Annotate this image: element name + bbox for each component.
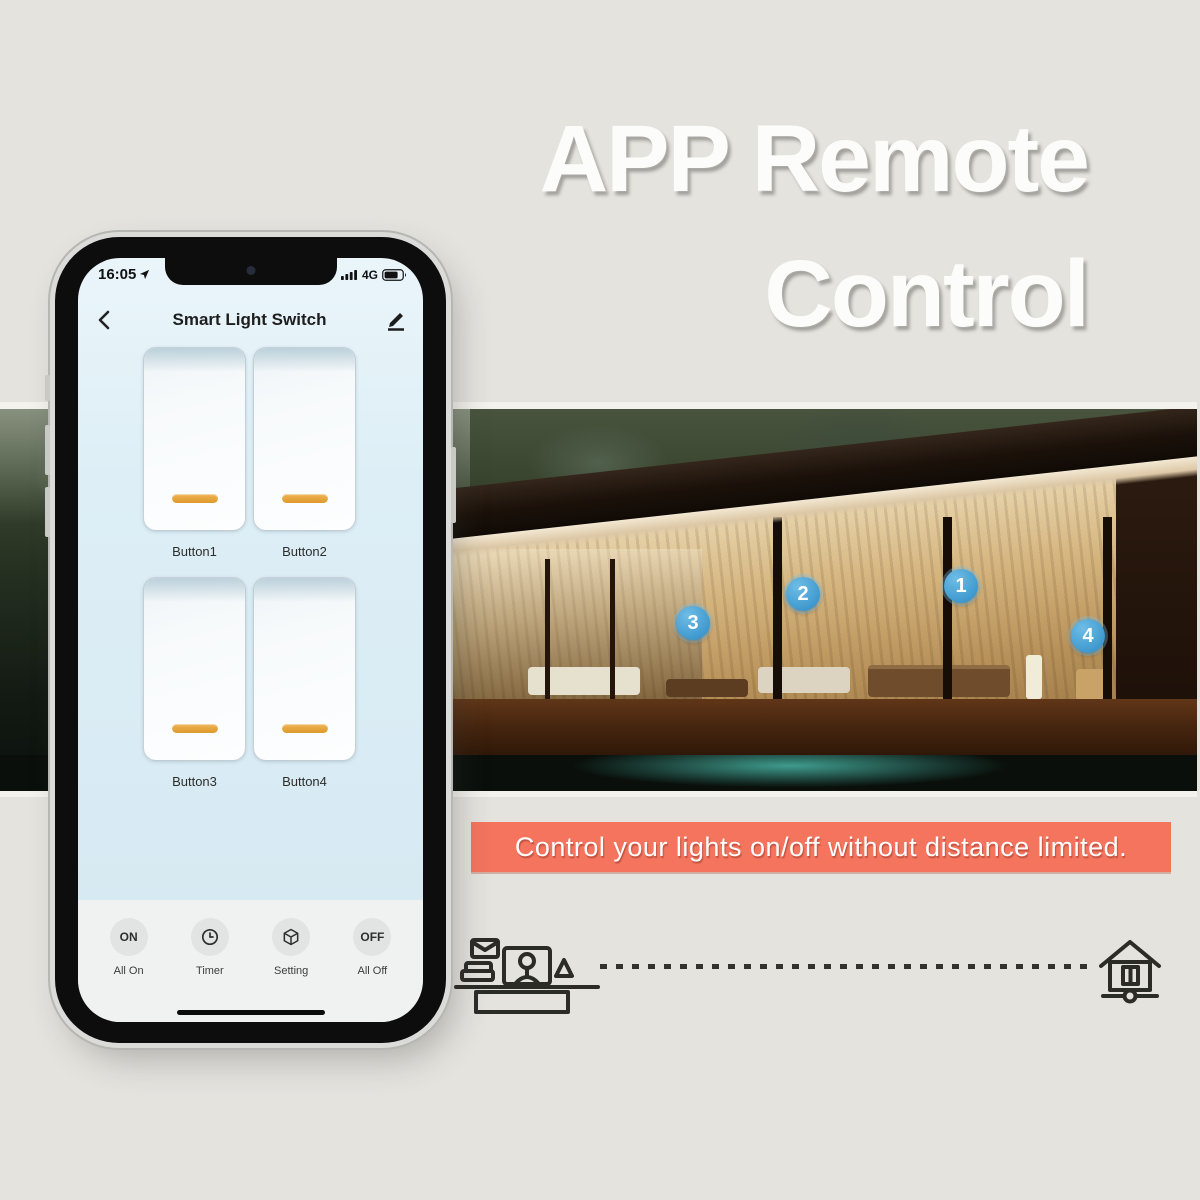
all-on-button[interactable]: ON All On	[96, 918, 162, 1022]
hero-title-line2: Control	[540, 227, 1088, 362]
network-type: 4G	[362, 268, 378, 282]
home-indicator[interactable]	[177, 1010, 325, 1015]
timer-button[interactable]: Timer	[177, 918, 243, 1022]
switch-button-1[interactable]	[143, 347, 246, 531]
back-chevron-icon[interactable]	[94, 309, 116, 331]
switch-glass-highlight	[254, 578, 355, 602]
app-header: Smart Light Switch	[78, 304, 423, 336]
lamp-silhouette	[1026, 655, 1042, 699]
switch-button-4[interactable]	[253, 577, 356, 761]
edit-pen-icon[interactable]	[383, 308, 407, 332]
caption-text: Control your lights on/off without dista…	[515, 832, 1127, 863]
switch-label: Button2	[253, 544, 356, 559]
switch-cell: Button3	[143, 577, 246, 789]
veranda-post	[545, 559, 550, 707]
switch-indicator-light	[282, 494, 328, 503]
switch-indicator-light	[172, 724, 218, 733]
off-text-icon: OFF	[353, 918, 391, 956]
caption-banner: Control your lights on/off without dista…	[471, 822, 1171, 872]
on-text-icon: ON	[110, 918, 148, 956]
switch-label: Button4	[253, 774, 356, 789]
switch-indicator-light	[172, 494, 218, 503]
person-at-desk-icon	[452, 932, 602, 1014]
power-button	[451, 447, 456, 523]
hero-title-line1: APP Remote	[540, 92, 1088, 227]
room-badge-4: 4	[1071, 619, 1105, 653]
signal-bars-icon	[341, 269, 358, 280]
switch-glass-highlight	[144, 578, 245, 602]
hero-title: APP Remote Control	[540, 92, 1088, 362]
table-silhouette	[666, 679, 748, 697]
all-off-button[interactable]: OFF All Off	[339, 918, 405, 1022]
switch-label: Button3	[143, 774, 246, 789]
veranda-post	[610, 559, 615, 707]
house-side-wall	[1116, 461, 1197, 716]
setting-label: Setting	[274, 965, 308, 977]
distance-dashed-line	[600, 964, 1088, 969]
switch-cell: Button4	[253, 577, 356, 789]
window-mullion	[1103, 517, 1112, 713]
switch-cell: Button1	[143, 347, 246, 559]
status-bar: 16:05 4G	[98, 266, 407, 283]
clock-time: 16:05	[98, 266, 136, 283]
switch-indicator-light	[282, 724, 328, 733]
room-badge-2: 2	[786, 577, 820, 611]
switch-cell: Button2	[253, 347, 356, 559]
all-on-label: All On	[114, 965, 144, 977]
switch-button-3[interactable]	[143, 577, 246, 761]
timer-label: Timer	[196, 965, 224, 977]
marketing-page: APP Remote Control 1 2 3	[0, 0, 1200, 1200]
location-arrow-icon	[139, 269, 150, 280]
app-title: Smart Light Switch	[116, 310, 383, 330]
volume-up-button	[45, 425, 50, 475]
phone-mockup: 16:05 4G	[55, 237, 446, 1043]
switch-label: Button1	[143, 544, 246, 559]
window-mullion	[773, 517, 782, 713]
mute-switch	[45, 375, 50, 401]
bottom-toolbar: ON All On Timer	[78, 900, 423, 1022]
switch-button-2[interactable]	[253, 347, 356, 531]
switch-glass-highlight	[254, 348, 355, 372]
clock-icon	[200, 927, 220, 947]
cabinet-silhouette	[868, 665, 1010, 697]
cube-setting-icon	[281, 927, 301, 947]
room-badge-3: 3	[676, 606, 710, 640]
switch-glass-highlight	[144, 348, 245, 372]
window-mullion	[943, 517, 952, 713]
battery-icon	[382, 269, 407, 281]
room-badge-1: 1	[944, 569, 978, 603]
setting-button[interactable]: Setting	[258, 918, 324, 1022]
app-screen: 16:05 4G	[78, 258, 423, 1022]
sofa-silhouette	[758, 667, 850, 693]
volume-down-button	[45, 487, 50, 537]
wood-deck	[370, 699, 1197, 757]
all-off-label: All Off	[357, 965, 387, 977]
smart-home-icon	[1093, 934, 1167, 1006]
